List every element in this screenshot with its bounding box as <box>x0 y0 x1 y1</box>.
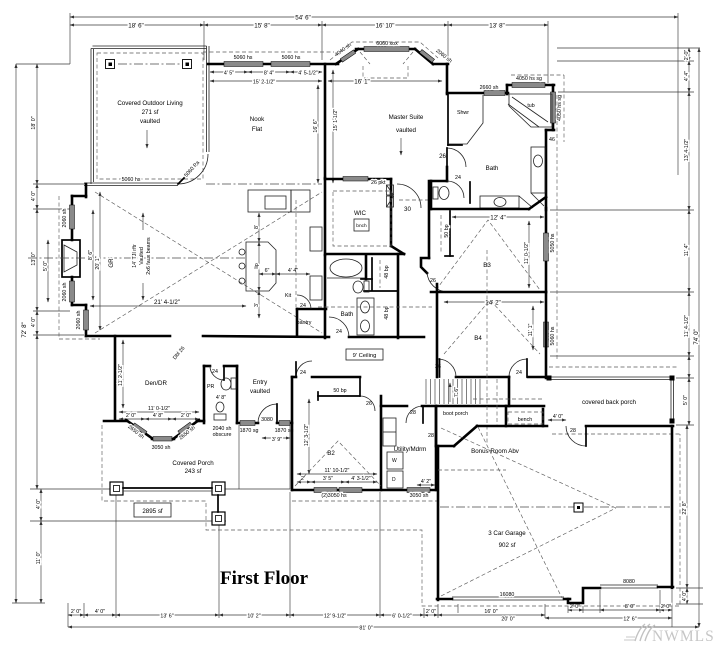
svg-text:4' 3-1/2": 4' 3-1/2" <box>351 476 371 482</box>
svg-text:15' 8": 15' 8" <box>254 23 269 30</box>
svg-text:9' Ceiling: 9' Ceiling <box>353 353 377 359</box>
svg-text:18' 6": 18' 6" <box>128 23 143 30</box>
svg-text:4' 0": 4' 0" <box>36 499 42 509</box>
svg-text:5' 0": 5' 0" <box>683 395 689 405</box>
svg-text:8' 4": 8' 4" <box>264 71 274 77</box>
svg-text:16' 10": 16' 10" <box>376 23 395 30</box>
svg-text:2' 0": 2' 0" <box>126 413 136 419</box>
svg-text:boot porch: boot porch <box>443 411 468 417</box>
svg-text:72' 8": 72' 8" <box>21 322 28 337</box>
svg-text:50 bp: 50 bp <box>444 224 450 237</box>
svg-text:11' 0-1/2": 11' 0-1/2" <box>524 242 530 264</box>
svg-text:3 Car Garage: 3 Car Garage <box>488 530 526 537</box>
svg-text:Master Suite: Master Suite <box>389 114 424 121</box>
svg-text:NWMLS: NWMLS <box>652 628 715 645</box>
svg-text:6": 6" <box>265 268 270 274</box>
svg-text:Utility/Mdrm: Utility/Mdrm <box>394 446 427 453</box>
svg-text:7' 6": 7' 6" <box>454 387 460 397</box>
svg-text:3' 5": 3' 5" <box>323 476 333 482</box>
svg-text:4' 0": 4' 0" <box>31 317 37 327</box>
svg-text:26: 26 <box>435 364 441 370</box>
svg-text:Bath: Bath <box>341 311 354 318</box>
svg-text:B4: B4 <box>474 335 482 342</box>
svg-text:Covered Porch: Covered Porch <box>172 460 214 467</box>
svg-text:11' 2-1/2": 11' 2-1/2" <box>118 364 124 386</box>
svg-text:covered back porch: covered back porch <box>582 399 637 406</box>
svg-text:11' 4": 11' 4" <box>684 243 690 256</box>
svg-text:2060 sh: 2060 sh <box>76 311 82 330</box>
svg-text:2060 sh: 2060 sh <box>62 283 68 302</box>
svg-text:2x6 faux beams: 2x6 faux beams <box>146 237 152 275</box>
svg-text:4' 0": 4' 0" <box>95 609 105 615</box>
svg-text:16' 0": 16' 0" <box>484 609 497 615</box>
svg-text:4' 0": 4' 0" <box>31 191 37 201</box>
svg-text:Kit: Kit <box>285 293 292 299</box>
svg-text:3': 3' <box>254 303 260 307</box>
svg-text:28: 28 <box>410 410 416 416</box>
svg-text:tub: tub <box>527 103 534 109</box>
svg-text:4' 5": 4' 5" <box>224 71 234 77</box>
svg-text:11' 10-1/2": 11' 10-1/2" <box>325 468 350 474</box>
svg-text:12' 4": 12' 4" <box>490 215 505 222</box>
svg-text:W: W <box>392 458 397 464</box>
svg-text:6' 0-1/2": 6' 0-1/2" <box>392 614 412 620</box>
svg-text:16' 1": 16' 1" <box>354 79 369 86</box>
svg-text:2' 0": 2' 0" <box>71 609 81 615</box>
svg-text:4' 0": 4' 0" <box>553 414 563 420</box>
svg-text:4' 5-1/2": 4' 5-1/2" <box>298 71 318 77</box>
svg-text:8080: 8080 <box>623 579 635 585</box>
svg-text:First Floor: First Floor <box>220 568 309 589</box>
svg-text:24: 24 <box>516 370 522 376</box>
svg-text:20' 1": 20' 1" <box>95 256 101 269</box>
svg-text:5050 hs: 5050 hs <box>550 233 556 252</box>
svg-text:pantry: pantry <box>297 320 312 326</box>
svg-text:bench: bench <box>518 417 532 423</box>
svg-text:16' 6": 16' 6" <box>313 119 319 132</box>
svg-text:8': 8' <box>254 225 260 229</box>
svg-text:Flat: Flat <box>252 126 263 133</box>
svg-text:2660 sh: 2660 sh <box>480 85 499 91</box>
svg-text:24: 24 <box>212 369 218 375</box>
svg-text:12' 6": 12' 6" <box>623 617 636 623</box>
svg-text:48 bp: 48 bp <box>384 265 390 278</box>
svg-text:24: 24 <box>300 370 306 376</box>
svg-text:3050 sh: 3050 sh <box>410 493 429 499</box>
svg-text:4' 0": 4' 0" <box>682 591 688 601</box>
svg-text:2'-0": 2'-0" <box>684 50 690 61</box>
svg-text:50 bp: 50 bp <box>333 388 346 394</box>
svg-text:13' 8": 13' 8" <box>489 23 504 30</box>
svg-text:4' 4": 4' 4" <box>288 268 298 274</box>
svg-text:1870 sg: 1870 sg <box>240 428 259 434</box>
svg-text:D: D <box>392 477 396 483</box>
svg-text:24: 24 <box>336 329 342 335</box>
svg-text:14' TJI rftr: 14' TJI rftr <box>132 244 138 268</box>
svg-text:GR: GR <box>108 258 115 268</box>
svg-text:Shwr: Shwr <box>457 110 469 116</box>
svg-text:271 sf: 271 sf <box>142 109 159 116</box>
svg-text:obscure: obscure <box>213 432 232 438</box>
svg-text:1870 sg: 1870 sg <box>275 428 294 434</box>
svg-text:2895 sf: 2895 sf <box>142 508 163 515</box>
svg-text:Entry: Entry <box>253 379 268 386</box>
svg-text:30: 30 <box>404 206 411 213</box>
svg-text:2060 sh: 2060 sh <box>62 209 68 228</box>
svg-text:21' 4-1/2": 21' 4-1/2" <box>154 299 180 306</box>
svg-text:10' 2": 10' 2" <box>247 614 260 620</box>
svg-text:54' 6": 54' 6" <box>295 15 310 22</box>
svg-text:5' 0": 5' 0" <box>43 261 49 271</box>
svg-text:4' 8": 4' 8" <box>153 413 163 419</box>
svg-text:26: 26 <box>430 278 436 284</box>
svg-text:13' 0": 13' 0" <box>31 252 37 265</box>
svg-text:Den/DR: Den/DR <box>145 380 168 387</box>
svg-text:4050 hs sg: 4050 hs sg <box>516 76 542 82</box>
svg-text:243 sf: 243 sf <box>185 468 202 475</box>
svg-text:PR: PR <box>207 384 215 390</box>
svg-text:8' 6": 8' 6" <box>88 250 94 260</box>
svg-text:26 pkt: 26 pkt <box>371 180 386 186</box>
svg-text:15' 1-1/2": 15' 1-1/2" <box>333 109 339 131</box>
svg-text:24: 24 <box>300 303 306 309</box>
svg-text:4' 4": 4' 4" <box>684 71 690 81</box>
svg-text:902 sf: 902 sf <box>499 542 516 549</box>
svg-text:11' 1": 11' 1" <box>528 323 534 336</box>
svg-text:8' 0": 8' 0" <box>625 604 635 610</box>
svg-text:11' 0-1/2": 11' 0-1/2" <box>148 406 170 412</box>
svg-text:46: 46 <box>549 137 555 143</box>
svg-text:11' 4-1/2": 11' 4-1/2" <box>684 315 690 337</box>
svg-text:4' 8": 4' 8" <box>216 395 226 401</box>
svg-text:Bath: Bath <box>486 165 499 172</box>
svg-text:(2)3050 hs: (2)3050 hs <box>321 493 347 499</box>
svg-text:5060 hs: 5060 hs <box>550 326 556 345</box>
svg-text:2' 0": 2' 0" <box>181 413 191 419</box>
svg-text:48 bp: 48 bp <box>384 306 390 319</box>
svg-text:11' 0": 11' 0" <box>36 551 42 564</box>
svg-text:26: 26 <box>366 401 372 407</box>
svg-text:vaulted: vaulted <box>140 118 161 125</box>
svg-text:26: 26 <box>439 153 446 160</box>
svg-text:15' 2-1/2": 15' 2-1/2" <box>253 80 275 86</box>
svg-text:5060 hs: 5060 hs <box>122 177 141 183</box>
svg-text:Bonus Room Abv: Bonus Room Abv <box>471 448 520 455</box>
svg-text:28: 28 <box>570 428 576 434</box>
svg-text:2' 0": 2' 0" <box>661 604 671 610</box>
svg-text:4' 2": 4' 2" <box>421 479 431 485</box>
svg-text:3080: 3080 <box>261 417 273 423</box>
svg-text:28: 28 <box>428 433 434 439</box>
svg-text:2' 0": 2' 0" <box>570 604 580 610</box>
svg-text:Covered Outdoor Living: Covered Outdoor Living <box>117 100 183 107</box>
svg-text:vaulted: vaulted <box>250 388 271 395</box>
svg-text:WIC: WIC <box>354 210 367 217</box>
svg-text:24: 24 <box>455 175 461 181</box>
svg-text:Nook: Nook <box>250 116 265 123</box>
svg-text:12' 3-1/2": 12' 3-1/2" <box>304 424 310 446</box>
svg-text:5060 hs: 5060 hs <box>282 55 301 61</box>
svg-text:vaulted: vaulted <box>396 127 417 134</box>
svg-text:18' 0": 18' 0" <box>31 116 37 129</box>
svg-text:Vaulted: Vaulted <box>139 247 145 265</box>
svg-text:81' 0": 81' 0" <box>359 626 372 632</box>
svg-text:20' 0": 20' 0" <box>501 617 514 623</box>
svg-text:13' 6": 13' 6" <box>160 614 173 620</box>
svg-text:lip: lip <box>254 263 260 268</box>
svg-text:13' 4-1/2": 13' 4-1/2" <box>684 139 690 161</box>
svg-text:12' 9-1/2": 12' 9-1/2" <box>324 614 346 620</box>
svg-text:3' 9": 3' 9" <box>272 437 282 443</box>
svg-text:bnch: bnch <box>356 223 367 229</box>
svg-text:22' 8": 22' 8" <box>682 501 688 514</box>
svg-text:16080: 16080 <box>500 592 515 598</box>
svg-text:74' 0": 74' 0" <box>693 329 700 344</box>
svg-text:5060 hs: 5060 hs <box>234 55 253 61</box>
svg-text:2' 0": 2' 0" <box>426 609 436 615</box>
svg-text:4050 hs sg: 4050 hs sg <box>557 95 563 121</box>
svg-text:3050 sh: 3050 sh <box>152 445 171 451</box>
